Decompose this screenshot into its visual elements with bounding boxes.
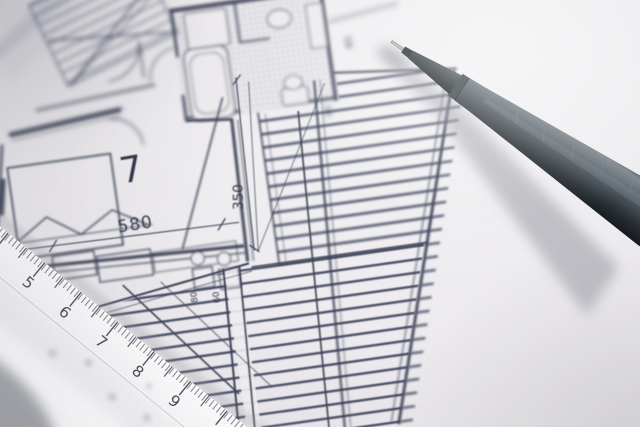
- shower: [184, 8, 231, 49]
- photo-architecture-plan: 85 80: [0, 0, 640, 427]
- dimension-350: 350: [230, 184, 246, 210]
- bathtub: [183, 44, 237, 121]
- deck-dimension-label: 85: [343, 35, 356, 49]
- dimension-80: 80: [189, 291, 201, 304]
- deck-dimension-label-2: 80: [324, 105, 335, 117]
- dimension-60: 60: [212, 290, 224, 303]
- scene-svg: 85 80: [0, 0, 640, 427]
